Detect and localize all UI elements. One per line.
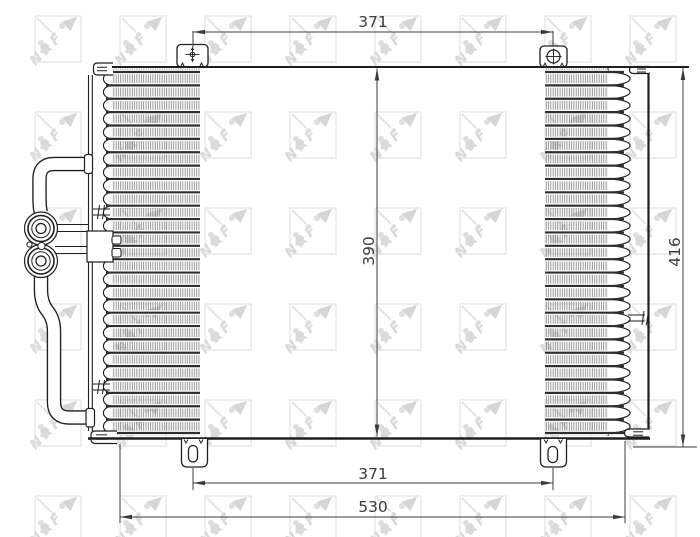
pipe-end-cap bbox=[85, 155, 93, 174]
bolt-hole bbox=[27, 242, 32, 247]
core-height-label: 390 bbox=[360, 236, 378, 266]
mounting-bracket-top-right bbox=[540, 46, 567, 67]
mounting-bracket-bottom-right bbox=[541, 439, 567, 467]
top-width-label: 371 bbox=[358, 13, 388, 31]
drawing-canvas: NRF bbox=[0, 0, 700, 537]
condenser-technical-drawing: NRF bbox=[0, 0, 700, 537]
top-left-plate-stub bbox=[94, 63, 114, 75]
mounting-bracket-bottom-left bbox=[182, 439, 208, 467]
overall-height-label: 416 bbox=[666, 237, 684, 267]
overall-width-label: 530 bbox=[358, 498, 388, 516]
bottom-right-plate-stub bbox=[625, 429, 650, 437]
bottom-left-plate-stub bbox=[91, 431, 117, 444]
mounting-bracket-top-left bbox=[177, 45, 208, 68]
bracket-slot bbox=[548, 447, 558, 463]
bottom-width-label: 371 bbox=[358, 465, 388, 483]
bracket-slot bbox=[189, 446, 198, 463]
pipe-end-cap bbox=[86, 409, 95, 428]
bolt-hole bbox=[38, 242, 45, 249]
